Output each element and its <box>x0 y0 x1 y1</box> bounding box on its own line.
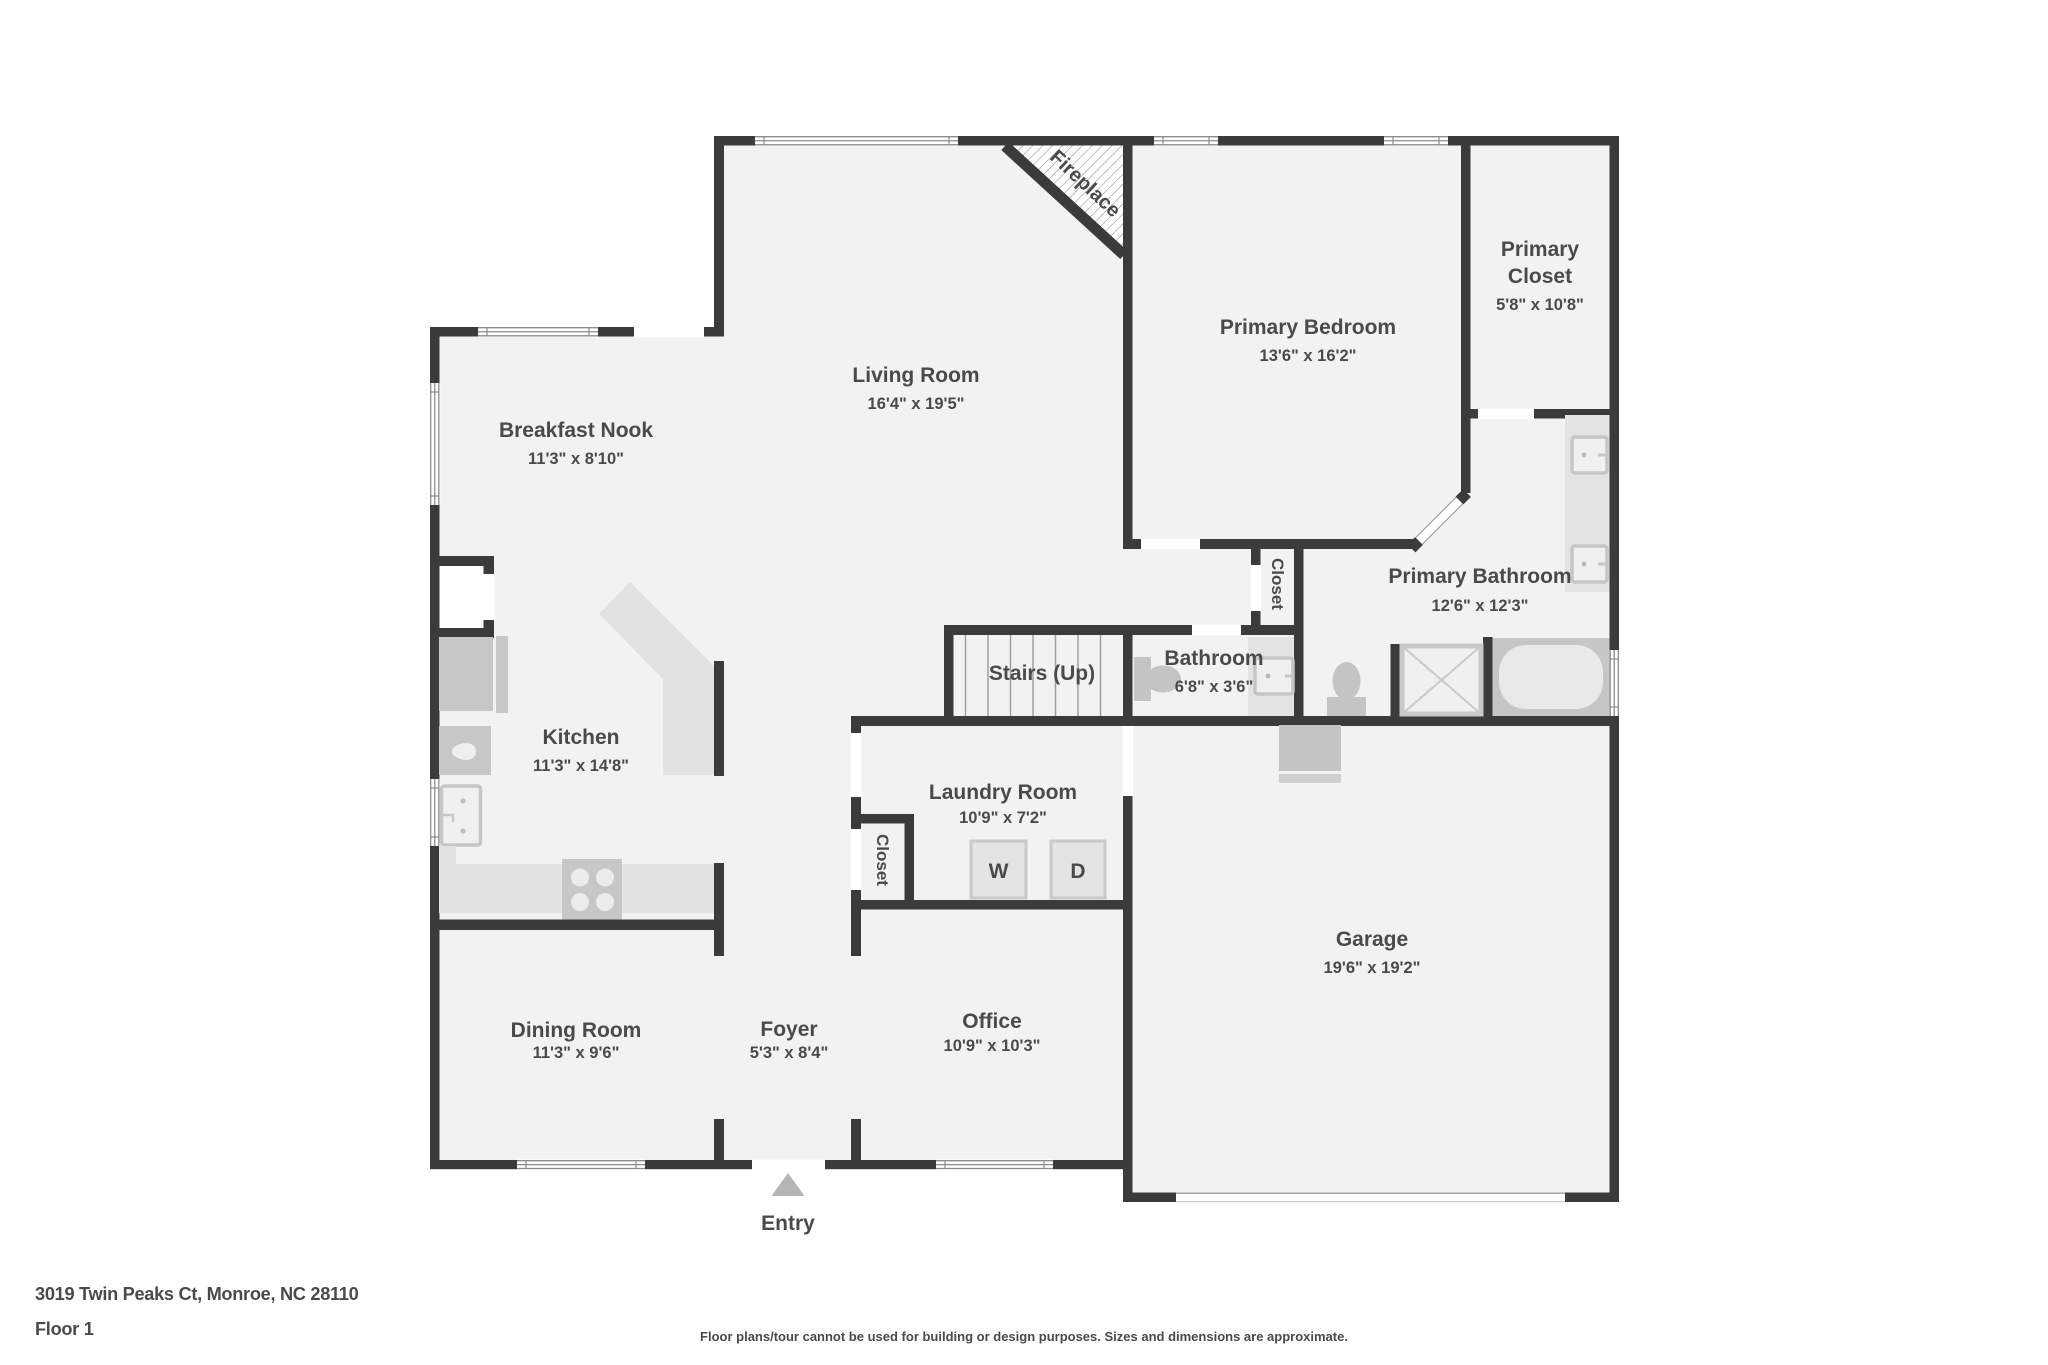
svg-text:11'3" x 14'8": 11'3" x 14'8" <box>533 757 629 775</box>
svg-text:Laundry Room: Laundry Room <box>929 781 1077 804</box>
svg-text:Living Room: Living Room <box>852 364 979 387</box>
svg-text:Stairs (Up): Stairs (Up) <box>989 662 1095 685</box>
svg-text:Primary Bedroom: Primary Bedroom <box>1220 316 1396 339</box>
svg-text:Primary: Primary <box>1501 238 1580 261</box>
svg-text:12'6" x 12'3": 12'6" x 12'3" <box>1432 597 1529 615</box>
svg-text:W: W <box>989 860 1009 883</box>
svg-text:Floor 1: Floor 1 <box>35 1319 94 1339</box>
svg-text:Floor plans/tour cannot be use: Floor plans/tour cannot be used for buil… <box>700 1329 1348 1344</box>
svg-text:Closet: Closet <box>1508 265 1572 288</box>
svg-text:11'3" x 9'6": 11'3" x 9'6" <box>533 1044 620 1062</box>
svg-text:Primary Bathroom: Primary Bathroom <box>1388 565 1571 588</box>
svg-text:Office: Office <box>962 1010 1022 1033</box>
svg-text:Bathroom: Bathroom <box>1164 647 1263 670</box>
svg-text:Garage: Garage <box>1336 928 1408 951</box>
svg-text:19'6" x 19'2": 19'6" x 19'2" <box>1324 959 1421 977</box>
svg-text:D: D <box>1070 860 1085 883</box>
svg-text:Kitchen: Kitchen <box>542 726 619 749</box>
svg-text:Dining Room: Dining Room <box>511 1019 642 1042</box>
svg-text:Entry: Entry <box>761 1212 815 1235</box>
svg-text:Closet: Closet <box>873 834 892 886</box>
svg-text:3019 Twin Peaks Ct, Monroe, NC: 3019 Twin Peaks Ct, Monroe, NC 28110 <box>35 1284 359 1304</box>
svg-text:10'9" x 7'2": 10'9" x 7'2" <box>959 809 1047 827</box>
svg-text:Closet: Closet <box>1268 558 1287 610</box>
svg-text:13'6" x 16'2": 13'6" x 16'2" <box>1260 347 1357 365</box>
svg-text:5'3" x 8'4": 5'3" x 8'4" <box>750 1044 829 1062</box>
svg-text:10'9" x 10'3": 10'9" x 10'3" <box>944 1037 1041 1055</box>
svg-text:Breakfast Nook: Breakfast Nook <box>499 419 653 442</box>
svg-text:11'3" x 8'10": 11'3" x 8'10" <box>528 450 624 468</box>
svg-text:16'4" x 19'5": 16'4" x 19'5" <box>868 395 965 413</box>
svg-text:Foyer: Foyer <box>760 1018 817 1041</box>
svg-text:6'8" x 3'6": 6'8" x 3'6" <box>1175 678 1254 696</box>
svg-text:5'8" x 10'8": 5'8" x 10'8" <box>1496 296 1584 314</box>
